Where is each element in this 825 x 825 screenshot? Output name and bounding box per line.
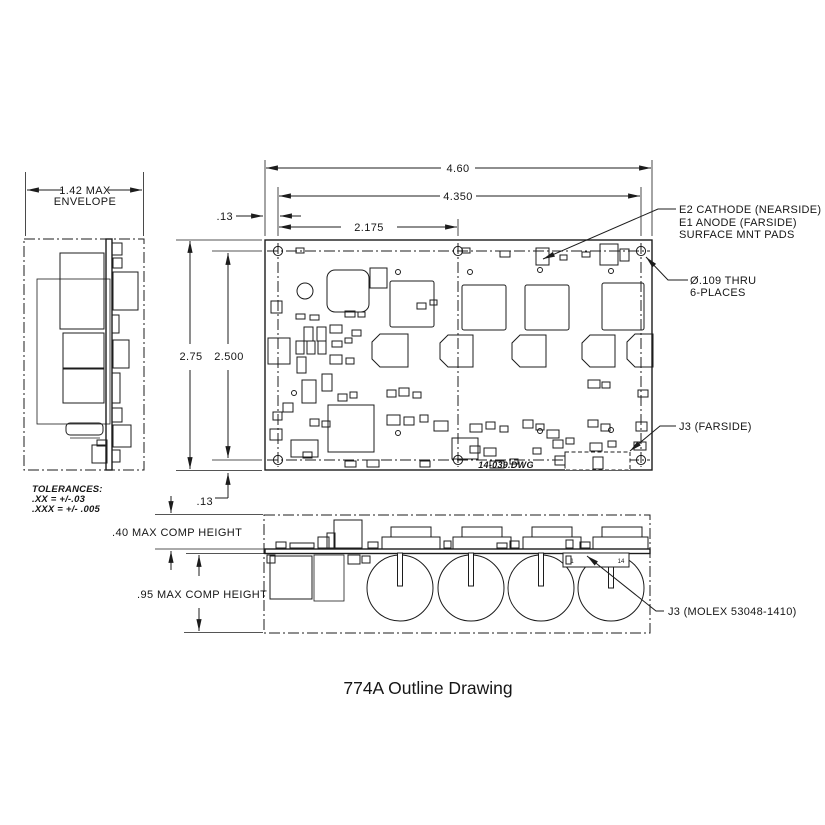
outline-drawing-canvas: 4.60 4.350 2.175 .13 1.42 MAX ENVELOPE 2… <box>0 0 825 825</box>
section-view <box>264 515 650 633</box>
dim-top-comp-height: .40 MAX COMP HEIGHT <box>112 527 242 539</box>
section-components-top <box>276 520 648 549</box>
pin-14-label: 14 <box>618 559 625 565</box>
note-pads-line1: E2 CATHODE (NEARSIDE) <box>679 204 821 216</box>
note-j3-farside: J3 (FARSIDE) <box>679 421 752 433</box>
tolerances-line2: .XXX = +/- .005 <box>32 504 100 515</box>
dim-edge-margin-bottom: .13 <box>197 496 214 508</box>
page-title: 774A Outline Drawing <box>343 678 512 698</box>
drawing-file-label: 14-039.DWG <box>478 460 534 470</box>
note-holes-line1: Ø.109 THRU <box>690 275 756 287</box>
dim-hole-span-height: 2.500 <box>214 351 244 363</box>
dim-overall-width: 4.60 <box>446 163 469 175</box>
drawing-sheet: 4.60 4.350 2.175 .13 1.42 MAX ENVELOPE 2… <box>0 0 825 825</box>
top-view <box>265 240 653 470</box>
section-components-bottom <box>267 553 644 621</box>
dim-overall-height: 2.75 <box>179 351 202 363</box>
dim-hole-half-span: 2.175 <box>354 222 384 234</box>
side-view-components-left <box>37 253 110 463</box>
dim-edge-margin-top: .13 <box>217 211 234 223</box>
j3-connector-farside <box>555 452 630 470</box>
note-pads-line2: E1 ANODE (FARSIDE) <box>679 217 797 229</box>
dim-envelope-width-2: ENVELOPE <box>54 196 117 208</box>
side-view <box>24 239 144 470</box>
note-pads-line3: SURFACE MNT PADS <box>679 229 795 241</box>
side-view-components-right <box>112 243 138 462</box>
dim-hole-span-width: 4.350 <box>443 191 473 203</box>
note-j3-molex: J3 (MOLEX 53048-1410) <box>668 606 797 618</box>
note-holes-line2: 6-PLACES <box>690 287 746 299</box>
dim-bottom-comp-height: .95 MAX COMP HEIGHT <box>137 589 267 601</box>
